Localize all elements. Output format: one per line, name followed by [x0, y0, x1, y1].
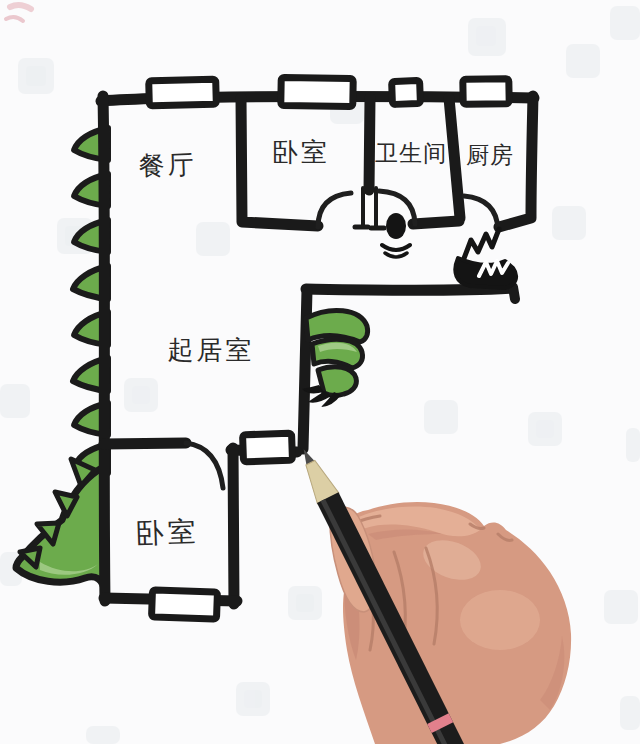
door-arc-bedroom-top [318, 193, 351, 227]
wall-bedroom-bath [369, 98, 370, 190]
head-bottom-hook [513, 287, 515, 299]
window [463, 79, 509, 105]
window [243, 433, 293, 462]
floor-plan-illustration: 餐厅 卧室 卫生间 厨房 起居室 卧室 [0, 0, 640, 744]
dino-arm [302, 310, 368, 407]
bedroom2-top-wall [104, 443, 186, 444]
door-arc-kitchen [464, 196, 498, 230]
dino-eye-icon [382, 213, 410, 257]
room-label-bathroom: 卫生间 [375, 140, 447, 166]
hand [330, 502, 571, 744]
dino-mouth [455, 229, 516, 288]
room-label-bedroom-top: 卧室 [272, 137, 330, 167]
upper-teeth [463, 229, 499, 261]
room-label-living: 起居室 [168, 335, 255, 365]
arm-hand [318, 367, 356, 396]
pink-smudge [6, 5, 31, 21]
room-label-bedroom-bottom: 卧室 [135, 515, 200, 550]
left-wall [103, 96, 105, 601]
bedroom2-right-wall [233, 448, 234, 604]
bathroom-bottom-wall [413, 221, 459, 224]
door-arc-bedroom-bottom [186, 443, 223, 488]
wall-bath-kitchen [449, 98, 460, 218]
drawing-canvas: 餐厅 卧室 卫生间 厨房 起居室 卧室 [0, 0, 640, 744]
room-label-dining: 餐厅 [138, 149, 197, 181]
window [392, 81, 421, 105]
dino-back-spikes [16, 128, 108, 590]
window [281, 77, 353, 106]
living-right-wall [303, 290, 307, 449]
room-label-kitchen: 厨房 [466, 142, 514, 168]
window [152, 590, 218, 619]
window [149, 79, 217, 106]
